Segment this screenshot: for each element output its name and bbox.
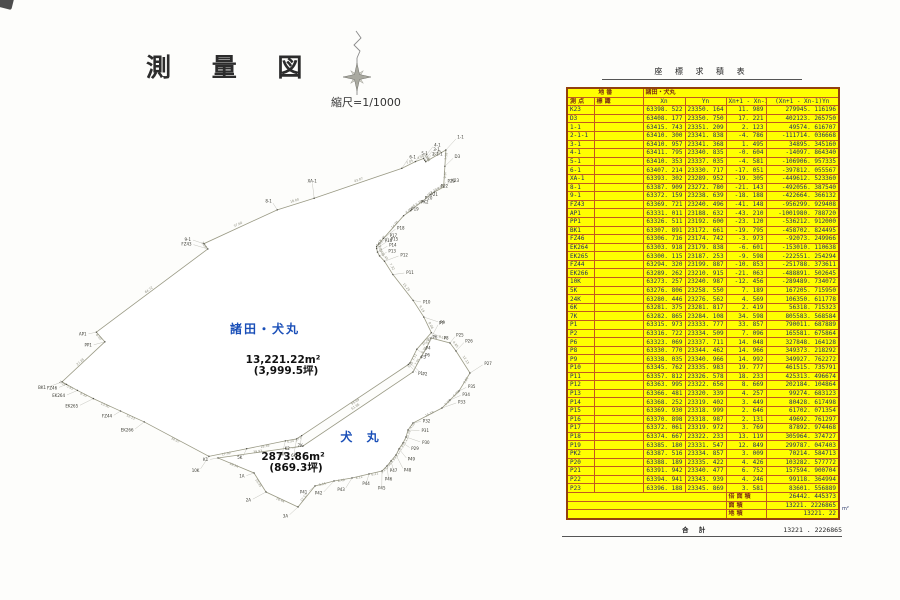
survey-point-label: P30 — [422, 440, 430, 445]
point-name-cell: 8-1 — [567, 183, 594, 192]
yn-cell: 23334. 857 — [685, 449, 726, 458]
mark-cell — [594, 183, 643, 192]
survey-point-label: FZ44 — [102, 414, 113, 419]
point-name-cell: D3 — [567, 114, 594, 123]
point-name-cell: 9-1 — [567, 192, 594, 201]
xn-cell: 63391. 942 — [643, 467, 685, 476]
xn-cell: 63330. 770 — [643, 346, 685, 355]
mark-cell — [594, 467, 643, 476]
xn-cell: 63366. 481 — [643, 389, 685, 398]
mark-cell — [594, 475, 643, 484]
xn-cell: 63372. 061 — [643, 424, 685, 433]
survey-point-label: D3 — [455, 154, 461, 159]
yn-cell: 23281. 817 — [685, 303, 726, 312]
point-name-cell: P9 — [567, 355, 594, 364]
product-cell: 165581. 675864 — [766, 329, 839, 338]
parcel-tsubo-label: (3,999.5坪) — [254, 364, 319, 377]
mark-cell — [594, 381, 643, 390]
yn-cell: 23341. 368 — [685, 140, 726, 149]
product-cell: -492056. 387540 — [766, 183, 839, 192]
diff-cell: -9. 598 — [726, 252, 766, 261]
point-name-cell: 10K — [567, 278, 594, 287]
yn-cell: 23331. 547 — [685, 441, 726, 450]
diff-cell: 18. 233 — [726, 372, 766, 381]
area-unit-label: m² — [842, 506, 849, 512]
survey-point-marker — [61, 381, 62, 382]
table-row: 8-163387. 90923272. 780-21. 143-492056. … — [567, 183, 839, 192]
diff-cell: -10. 853 — [726, 260, 766, 269]
survey-point-label: 6K — [291, 453, 297, 458]
xn-cell: 63316. 722 — [643, 329, 685, 338]
leader-line — [393, 273, 404, 275]
mark-cell — [594, 338, 643, 347]
table-row: P1663370. 89823318. 9872. 13149692. 7612… — [567, 415, 839, 424]
leader-line — [346, 478, 352, 488]
xn-cell: 63280. 446 — [643, 295, 685, 304]
mark-cell — [594, 243, 643, 252]
point-name-cell: P22 — [567, 475, 594, 484]
yn-cell: 23320. 339 — [685, 389, 726, 398]
survey-point-marker — [77, 390, 78, 391]
survey-point-label: P35 — [468, 384, 476, 389]
diff-cell: 2. 646 — [726, 406, 766, 415]
leader-line — [135, 422, 144, 429]
xn-cell: 63410. 957 — [643, 140, 685, 149]
parcel-name-value: 諸田・犬丸 — [643, 88, 839, 97]
mark-cell — [594, 484, 643, 493]
diff-cell: -12. 456 — [726, 278, 766, 287]
col-header-yn: Yn — [685, 97, 726, 106]
survey-point-label: P34 — [462, 392, 470, 397]
product-cell: 103282. 577772 — [766, 458, 839, 467]
product-cell: 279945. 116196 — [766, 106, 839, 115]
mark-cell — [594, 140, 643, 149]
diff-cell: -17. 051 — [726, 166, 766, 175]
diff-cell: 3. 581 — [726, 484, 766, 493]
survey-point-label: P27 — [484, 361, 492, 366]
product-cell: -153010. 110638 — [766, 243, 839, 252]
survey-point-label: XA-1 — [307, 179, 317, 184]
yn-cell: 23192. 600 — [685, 217, 726, 226]
point-name-cell: 4-1 — [567, 149, 594, 158]
survey-point-label: 10K — [192, 468, 200, 473]
table-row: FZ4463294. 32023199. 887-10. 853-251788.… — [567, 260, 839, 269]
product-cell: 167205. 715950 — [766, 286, 839, 295]
xn-cell: 63294. 320 — [643, 260, 685, 269]
yn-cell: 23350. 164 — [685, 106, 726, 115]
table-row: P1863374. 66723322. 23313. 119305964. 37… — [567, 432, 839, 441]
diff-cell: 4. 426 — [726, 458, 766, 467]
survey-point-label: BK1 — [38, 385, 46, 390]
product-cell: -956299. 929408 — [766, 200, 839, 209]
mark-cell — [594, 192, 643, 201]
survey-point-label: P12 — [400, 253, 408, 258]
survey-point-marker — [431, 332, 432, 333]
product-cell: 56318. 715323 — [766, 303, 839, 312]
diff-cell: 2. 419 — [726, 303, 766, 312]
xn-cell: 63289. 262 — [643, 269, 685, 278]
survey-point-label: P9 — [440, 320, 445, 325]
xn-cell: 63363. 995 — [643, 381, 685, 390]
point-name-cell: PP1 — [567, 217, 594, 226]
xn-cell: 63338. 035 — [643, 355, 685, 364]
xn-cell: 63407. 214 — [643, 166, 685, 175]
table-row: BK163307. 89123172. 661-19. 795-458702. … — [567, 226, 839, 235]
footer-value-cell: 13221. 22 — [766, 510, 839, 519]
xn-cell: 63393. 302 — [643, 174, 685, 183]
footer-row: 倍 面 積26442. 445373 — [567, 492, 839, 501]
xn-cell: 63323. 069 — [643, 338, 685, 347]
survey-point-label: 3A — [283, 513, 289, 518]
xn-cell: 63315. 973 — [643, 321, 685, 330]
survey-point-marker — [120, 410, 121, 411]
edge-length-label: 18.38 — [260, 443, 270, 449]
table-row: XA-163393. 30223289. 952-19. 305-449612.… — [567, 174, 839, 183]
leader-line — [80, 399, 93, 406]
product-cell: 349927. 762272 — [766, 355, 839, 364]
product-cell: 305964. 374727 — [766, 432, 839, 441]
product-cell: 425313. 496674 — [766, 372, 839, 381]
yn-cell: 23289. 952 — [685, 174, 726, 183]
product-cell: 34895. 345160 — [766, 140, 839, 149]
leader-line — [210, 458, 218, 459]
table-row: P263316. 72223334. 5097. 096165581. 6758… — [567, 329, 839, 338]
yn-cell: 23337. 035 — [685, 157, 726, 166]
leader-line — [470, 365, 483, 373]
scanned-survey-sheet: 測 量 図 縮尺=1/1000 39.93K161.66K27.91P34.39… — [0, 0, 900, 600]
yn-cell: 23276. 562 — [685, 295, 726, 304]
point-name-cell: 1-1 — [567, 123, 594, 132]
survey-point-label: 24K — [278, 451, 286, 456]
table-row: P663323. 06923337. 71114. 048327848. 164… — [567, 338, 839, 347]
xn-cell: 63387. 516 — [643, 449, 685, 458]
mark-cell — [594, 389, 643, 398]
col-header-xn: Xn — [643, 97, 685, 106]
point-name-cell: PK2 — [567, 449, 594, 458]
survey-point-label: P6 — [425, 352, 430, 357]
point-name-cell: P12 — [567, 381, 594, 390]
survey-point-label: AP1 — [79, 332, 87, 337]
survey-point-label: FZ46 — [47, 385, 58, 390]
product-cell: 61702. 071354 — [766, 406, 839, 415]
point-name-cell: P20 — [567, 458, 594, 467]
survey-point-label: 1-1 — [457, 135, 464, 140]
yn-cell: 23330. 717 — [685, 166, 726, 175]
product-cell: 99118. 364994 — [766, 475, 839, 484]
mark-cell — [594, 217, 643, 226]
table-row: P1963385. 18023331. 54712. 849299787. 04… — [567, 441, 839, 450]
mark-cell — [594, 131, 643, 140]
xn-cell: 63410. 300 — [643, 131, 685, 140]
survey-point-label: EK264 — [52, 393, 65, 398]
diff-cell: -43. 210 — [726, 209, 766, 218]
survey-point-label: P46 — [385, 477, 393, 482]
survey-point-label: P49 — [408, 457, 416, 462]
yn-cell: 23319. 972 — [685, 424, 726, 433]
product-cell: 202184. 104864 — [766, 381, 839, 390]
diff-cell: -23. 120 — [726, 217, 766, 226]
leader-line — [396, 455, 403, 468]
leader-line — [312, 183, 314, 198]
table-row: PK263387. 51623334. 8573. 00970214. 5847… — [567, 449, 839, 458]
diff-cell: -21. 143 — [726, 183, 766, 192]
table-title: 座 標 求 積 表 — [602, 66, 802, 80]
survey-point-label: P14 — [389, 242, 397, 247]
table-row: D363408. 17723350. 75017. 221402123. 265… — [567, 114, 839, 123]
mark-cell — [594, 123, 643, 132]
yn-cell: 23335. 983 — [685, 364, 726, 373]
product-cell: 49692. 761297 — [766, 415, 839, 424]
yn-cell: 23318. 987 — [685, 415, 726, 424]
xn-cell: 63408. 177 — [643, 114, 685, 123]
footer-blank-cell — [567, 492, 726, 501]
xn-cell: 63331. 011 — [643, 209, 685, 218]
yn-cell: 23188. 632 — [685, 209, 726, 218]
xn-cell: 63369. 930 — [643, 406, 685, 415]
edge-length-label: 9.14 — [318, 481, 326, 487]
diff-cell: 14. 048 — [726, 338, 766, 347]
product-cell: -92073. 249966 — [766, 235, 839, 244]
product-cell: 461515. 735791 — [766, 364, 839, 373]
xn-cell: 63374. 667 — [643, 432, 685, 441]
edge-length-label: 17.92 — [221, 451, 231, 457]
survey-point-label: 6-1 — [409, 154, 416, 159]
mark-cell — [594, 235, 643, 244]
diff-cell: -19. 305 — [726, 174, 766, 183]
table-row: 10K63273. 25723240. 987-12. 456-289489. … — [567, 278, 839, 287]
survey-point-label: 2A — [246, 497, 252, 502]
yn-cell: 23322. 656 — [685, 381, 726, 390]
product-cell: -222551. 254294 — [766, 252, 839, 261]
mark-cell — [594, 114, 643, 123]
footer-value-cell: 13221. 2226865 — [766, 501, 839, 510]
survey-point-label: P23 — [447, 178, 455, 183]
point-name-cell: P13 — [567, 389, 594, 398]
table-row: EK26563300. 11523187. 253-9. 598-222551.… — [567, 252, 839, 261]
edge-length-label: 8.49 — [337, 478, 345, 483]
yn-cell: 23340. 477 — [685, 467, 726, 476]
diff-cell: 6. 752 — [726, 467, 766, 476]
yn-cell: 23337. 711 — [685, 338, 726, 347]
total-row: 合 計 13221 . 2226865 — [562, 524, 842, 537]
survey-point-label: 4-1 — [434, 142, 441, 147]
point-name-cell: P6 — [567, 338, 594, 347]
diff-cell: 13. 119 — [726, 432, 766, 441]
mark-cell — [594, 106, 643, 115]
point-name-cell: 7K — [567, 312, 594, 321]
product-cell: -111714. 036668 — [766, 131, 839, 140]
mark-cell — [594, 364, 643, 373]
table-row: 6K63281. 37523281. 8172. 41956318. 71532… — [567, 303, 839, 312]
point-name-cell: P16 — [567, 415, 594, 424]
table-row: P1263363. 99523322. 6568. 669202184. 104… — [567, 381, 839, 390]
survey-point-label: P42 — [315, 491, 323, 496]
table-row: P163315. 97323333. 77733. 857790011. 687… — [567, 321, 839, 330]
survey-point-label: P11 — [406, 270, 414, 275]
point-name-cell: EK264 — [567, 243, 594, 252]
table-row: 9-163372. 15923238. 639-18. 188-422664. … — [567, 192, 839, 201]
product-cell: 790011. 687889 — [766, 321, 839, 330]
xn-cell: 63368. 252 — [643, 398, 685, 407]
table-row: AP163331. 01123188. 632-43. 210-1001980.… — [567, 209, 839, 218]
product-cell: -397812. 055567 — [766, 166, 839, 175]
table-row: P1063345. 76223335. 98319. 777461515. 73… — [567, 364, 839, 373]
leader-line — [89, 332, 97, 334]
yn-cell: 23174. 742 — [685, 235, 726, 244]
yn-cell: 23179. 838 — [685, 243, 726, 252]
mark-cell — [594, 286, 643, 295]
mark-cell — [594, 226, 643, 235]
mark-cell — [594, 252, 643, 261]
footer-blank-cell — [567, 501, 726, 510]
point-name-cell: P8 — [567, 346, 594, 355]
table-row: P2363396. 18823345. 8693. 58183601. 5568… — [567, 484, 839, 493]
product-cell: 83601. 556889 — [766, 484, 839, 493]
survey-point-label: 5-1 — [421, 151, 428, 156]
mark-cell — [594, 449, 643, 458]
table-row: 3-163410. 95723341. 3681. 49534895. 3451… — [567, 140, 839, 149]
point-name-cell: P18 — [567, 432, 594, 441]
xn-cell: 63388. 189 — [643, 458, 685, 467]
product-cell: 99274. 683123 — [766, 389, 839, 398]
xn-cell: 63394. 941 — [643, 475, 685, 484]
diff-cell: 33. 857 — [726, 321, 766, 330]
point-name-cell: 3-1 — [567, 140, 594, 149]
leader-line — [446, 139, 456, 150]
coordinate-table: 地 番諸田・犬丸測 点標 識XnYnXn+1 - Xn-1(Xn+1 - Xn-… — [566, 87, 840, 520]
mark-cell — [594, 260, 643, 269]
table-row: P1763372. 06123319. 9723. 76987892. 9744… — [567, 424, 839, 433]
xn-cell: 63396. 188 — [643, 484, 685, 493]
diff-cell: 7. 096 — [726, 329, 766, 338]
survey-point-label: P17 — [390, 233, 398, 238]
yn-cell: 23318. 999 — [685, 406, 726, 415]
xn-cell: 63369. 721 — [643, 200, 685, 209]
diff-cell: -6. 601 — [726, 243, 766, 252]
product-cell: -458702. 824495 — [766, 226, 839, 235]
point-name-cell: 6-1 — [567, 166, 594, 175]
diff-cell: 14. 966 — [726, 346, 766, 355]
leader-line — [246, 473, 254, 476]
xn-cell: 63357. 812 — [643, 372, 685, 381]
total-value: 13221 . 2226865 — [783, 526, 842, 534]
survey-point-label: P41 — [300, 490, 308, 495]
xn-cell: 63345. 762 — [643, 364, 685, 373]
column-header-row: 測 点標 識XnYnXn+1 - Xn-1(Xn+1 - Xn-1)Yn — [567, 97, 839, 106]
survey-point-label: 8-1 — [265, 199, 272, 204]
diff-cell: 4. 246 — [726, 475, 766, 484]
survey-point-label: P2 — [422, 372, 427, 377]
yn-cell: 23334. 509 — [685, 329, 726, 338]
mark-cell — [594, 303, 643, 312]
compass-icon — [343, 31, 371, 95]
diff-cell: 3. 769 — [726, 424, 766, 433]
point-name-cell: P11 — [567, 372, 594, 381]
mark-cell — [594, 355, 643, 364]
table-row: P1463368. 25223319. 4023. 44980428. 6174… — [567, 398, 839, 407]
yn-cell: 23272. 780 — [685, 183, 726, 192]
product-cell: -1001980. 788720 — [766, 209, 839, 218]
parcel-header-row: 地 番諸田・犬丸 — [567, 88, 839, 97]
diff-cell: 1. 495 — [726, 140, 766, 149]
table-row: 6-163407. 21423330. 717-17. 051-397812. … — [567, 166, 839, 175]
yn-cell: 23187. 253 — [685, 252, 726, 261]
yn-cell: 23240. 496 — [685, 200, 726, 209]
xn-cell: 63282. 865 — [643, 312, 685, 321]
yn-cell: 23210. 915 — [685, 269, 726, 278]
survey-point-label: 5K — [237, 455, 243, 460]
point-name-cell: P1 — [567, 321, 594, 330]
footer-blank-cell — [567, 510, 726, 519]
yn-cell: 23172. 661 — [685, 226, 726, 235]
survey-point-label: P18 — [397, 225, 405, 230]
product-cell: -488891. 502645 — [766, 269, 839, 278]
leader-line — [273, 203, 277, 210]
table-row: P2263394. 94123343. 9394. 24699118. 3649… — [567, 475, 839, 484]
point-name-cell: EK265 — [567, 252, 594, 261]
point-name-cell: P2 — [567, 329, 594, 338]
survey-point-label: P47 — [390, 468, 398, 473]
point-name-cell: XA-1 — [567, 174, 594, 183]
survey-point-label: EK265 — [65, 403, 78, 408]
xn-cell: 63281. 375 — [643, 303, 685, 312]
yn-cell: 23343. 939 — [685, 475, 726, 484]
point-name-cell: P23 — [567, 484, 594, 493]
diff-cell: 8. 669 — [726, 381, 766, 390]
leader-line — [253, 492, 266, 499]
survey-point-label: P8 — [444, 336, 449, 341]
product-cell: 402123. 265750 — [766, 114, 839, 123]
survey-point-label: P33 — [458, 400, 466, 405]
point-name-cell: K23 — [567, 106, 594, 115]
footer-label-cell: 倍 面 積 — [726, 492, 766, 501]
yn-cell: 23284. 108 — [685, 312, 726, 321]
survey-point-marker — [423, 316, 424, 317]
yn-cell: 23319. 402 — [685, 398, 726, 407]
col-header-diff: Xn+1 - Xn-1 — [726, 97, 766, 106]
parcel-name-label: 諸田・犬丸 — [230, 321, 300, 336]
xn-cell: 63398. 522 — [643, 106, 685, 115]
mark-cell — [594, 174, 643, 183]
col-header-point: 測 点 — [567, 97, 594, 106]
col-header-product: (Xn+1 - Xn-1)Yn — [766, 97, 839, 106]
point-name-cell: AP1 — [567, 209, 594, 218]
yn-cell: 23345. 869 — [685, 484, 726, 493]
xn-cell: 63385. 180 — [643, 441, 685, 450]
mark-cell — [594, 398, 643, 407]
yn-cell: 23340. 835 — [685, 149, 726, 158]
diff-cell: 4. 257 — [726, 389, 766, 398]
table-row: FZ4663306. 71623174. 742-3. 973-92073. 2… — [567, 235, 839, 244]
mark-cell — [594, 415, 643, 424]
table-row: 4-163411. 79523340. 835-0. 604-14097. 86… — [567, 149, 839, 158]
diff-cell: 3. 009 — [726, 449, 766, 458]
table-row: EK26663289. 26223210. 915-21. 063-488891… — [567, 269, 839, 278]
xn-cell: 63306. 716 — [643, 235, 685, 244]
table-row: P863330. 77023344. 46214. 966349373. 218… — [567, 346, 839, 355]
xn-cell: 63326. 511 — [643, 217, 685, 226]
product-cell: 299787. 047403 — [766, 441, 839, 450]
product-cell: 327848. 164128 — [766, 338, 839, 347]
diff-cell: 12. 849 — [726, 441, 766, 450]
product-cell: 157594. 900704 — [766, 467, 839, 476]
footer-label-cell: 面 積 — [726, 501, 766, 510]
survey-point-marker — [93, 398, 94, 399]
edge-length-label: 9.67 — [443, 171, 447, 178]
survey-point-label: P48 — [404, 467, 412, 472]
product-cell: 87892. 974468 — [766, 424, 839, 433]
survey-point-label: P45 — [378, 485, 386, 490]
